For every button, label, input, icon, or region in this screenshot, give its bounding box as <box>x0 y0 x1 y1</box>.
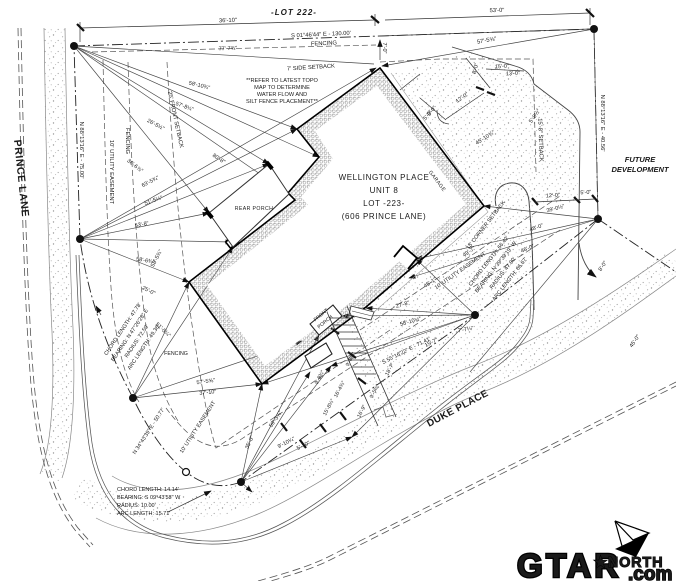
svg-text:FENCING: FENCING <box>124 128 130 155</box>
svg-text:-LOT 222-: -LOT 222- <box>271 8 317 17</box>
svg-text:15'-0": 15'-0" <box>495 64 509 71</box>
svg-text:WELLINGTON PLACE: WELLINGTON PLACE <box>339 173 430 182</box>
svg-text:36'-10": 36'-10" <box>219 18 237 25</box>
svg-text:10' UTILITY EASEMENT: 10' UTILITY EASEMENT <box>108 140 114 205</box>
svg-text:**REFER TO LATEST TOPO: **REFER TO LATEST TOPO <box>246 78 318 84</box>
svg-text:FENCING: FENCING <box>311 40 338 47</box>
svg-text:FENCING: FENCING <box>164 351 188 357</box>
svg-text:★NORTH: ★NORTH <box>594 555 663 571</box>
svg-text:LOT -223-: LOT -223- <box>363 199 405 208</box>
svg-text:13'-0": 13'-0" <box>506 71 520 78</box>
svg-text:(606 PRINCE LANE): (606 PRINCE LANE) <box>342 212 426 221</box>
svg-text:SILT FENCE PLACEMENT**: SILT FENCE PLACEMENT** <box>246 99 319 105</box>
svg-text:7'-0": 7'-0" <box>381 43 387 54</box>
svg-text:DEVELOPMENT: DEVELOPMENT <box>611 165 670 174</box>
svg-text:ARC LENGTH: 15.71': ARC LENGTH: 15.71' <box>117 511 170 517</box>
svg-text:UNIT 8: UNIT 8 <box>370 186 399 195</box>
svg-text:53'-0": 53'-0" <box>489 8 504 15</box>
svg-text:CHORD LENGTH: 14.14': CHORD LENGTH: 14.14' <box>117 487 179 493</box>
svg-text:RADIUS: 10.00': RADIUS: 10.00' <box>117 503 156 509</box>
svg-text:N 88°13'16" E - 40.56': N 88°13'16" E - 40.56' <box>599 95 605 152</box>
svg-text:FUTURE: FUTURE <box>625 155 656 164</box>
svg-text:MAP TO DETERMINE: MAP TO DETERMINE <box>254 85 310 91</box>
svg-text:WATER FLOW AND: WATER FLOW AND <box>257 92 307 98</box>
svg-text:5'-0": 5'-0" <box>580 190 591 197</box>
svg-text:N 88°13'16" E - 75.00': N 88°13'16" E - 75.00' <box>78 122 84 179</box>
svg-text:12'-0": 12'-0" <box>546 193 560 200</box>
svg-text:REAR PORCH: REAR PORCH <box>235 206 274 212</box>
svg-text:77'-7¾": 77'-7¾" <box>219 46 238 53</box>
svg-text:BEARING: S 09°43'58" W: BEARING: S 09°43'58" W <box>117 495 181 501</box>
